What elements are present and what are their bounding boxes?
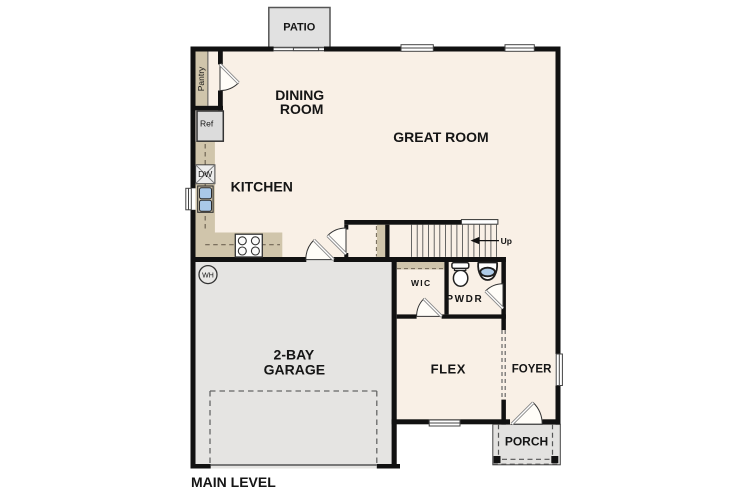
svg-text:FOYER: FOYER [512, 364, 552, 376]
svg-text:MAIN LEVEL: MAIN LEVEL [191, 474, 276, 490]
svg-text:KITCHEN: KITCHEN [231, 179, 293, 195]
svg-text:GARAGE: GARAGE [264, 362, 325, 378]
svg-text:Pantry: Pantry [196, 66, 206, 91]
svg-text:PORCH: PORCH [505, 435, 548, 449]
svg-text:PATIO: PATIO [283, 21, 315, 33]
svg-text:ROOM: ROOM [280, 101, 324, 117]
svg-text:Up: Up [501, 236, 512, 246]
svg-text:WIC: WIC [411, 278, 431, 288]
svg-text:DW: DW [198, 169, 212, 179]
svg-text:WH: WH [202, 272, 214, 279]
svg-text:PWDR: PWDR [446, 294, 483, 305]
svg-text:2-BAY: 2-BAY [274, 347, 315, 363]
svg-text:Ref: Ref [200, 118, 214, 128]
svg-text:GREAT ROOM: GREAT ROOM [393, 129, 488, 145]
svg-text:FLEX: FLEX [431, 361, 466, 376]
